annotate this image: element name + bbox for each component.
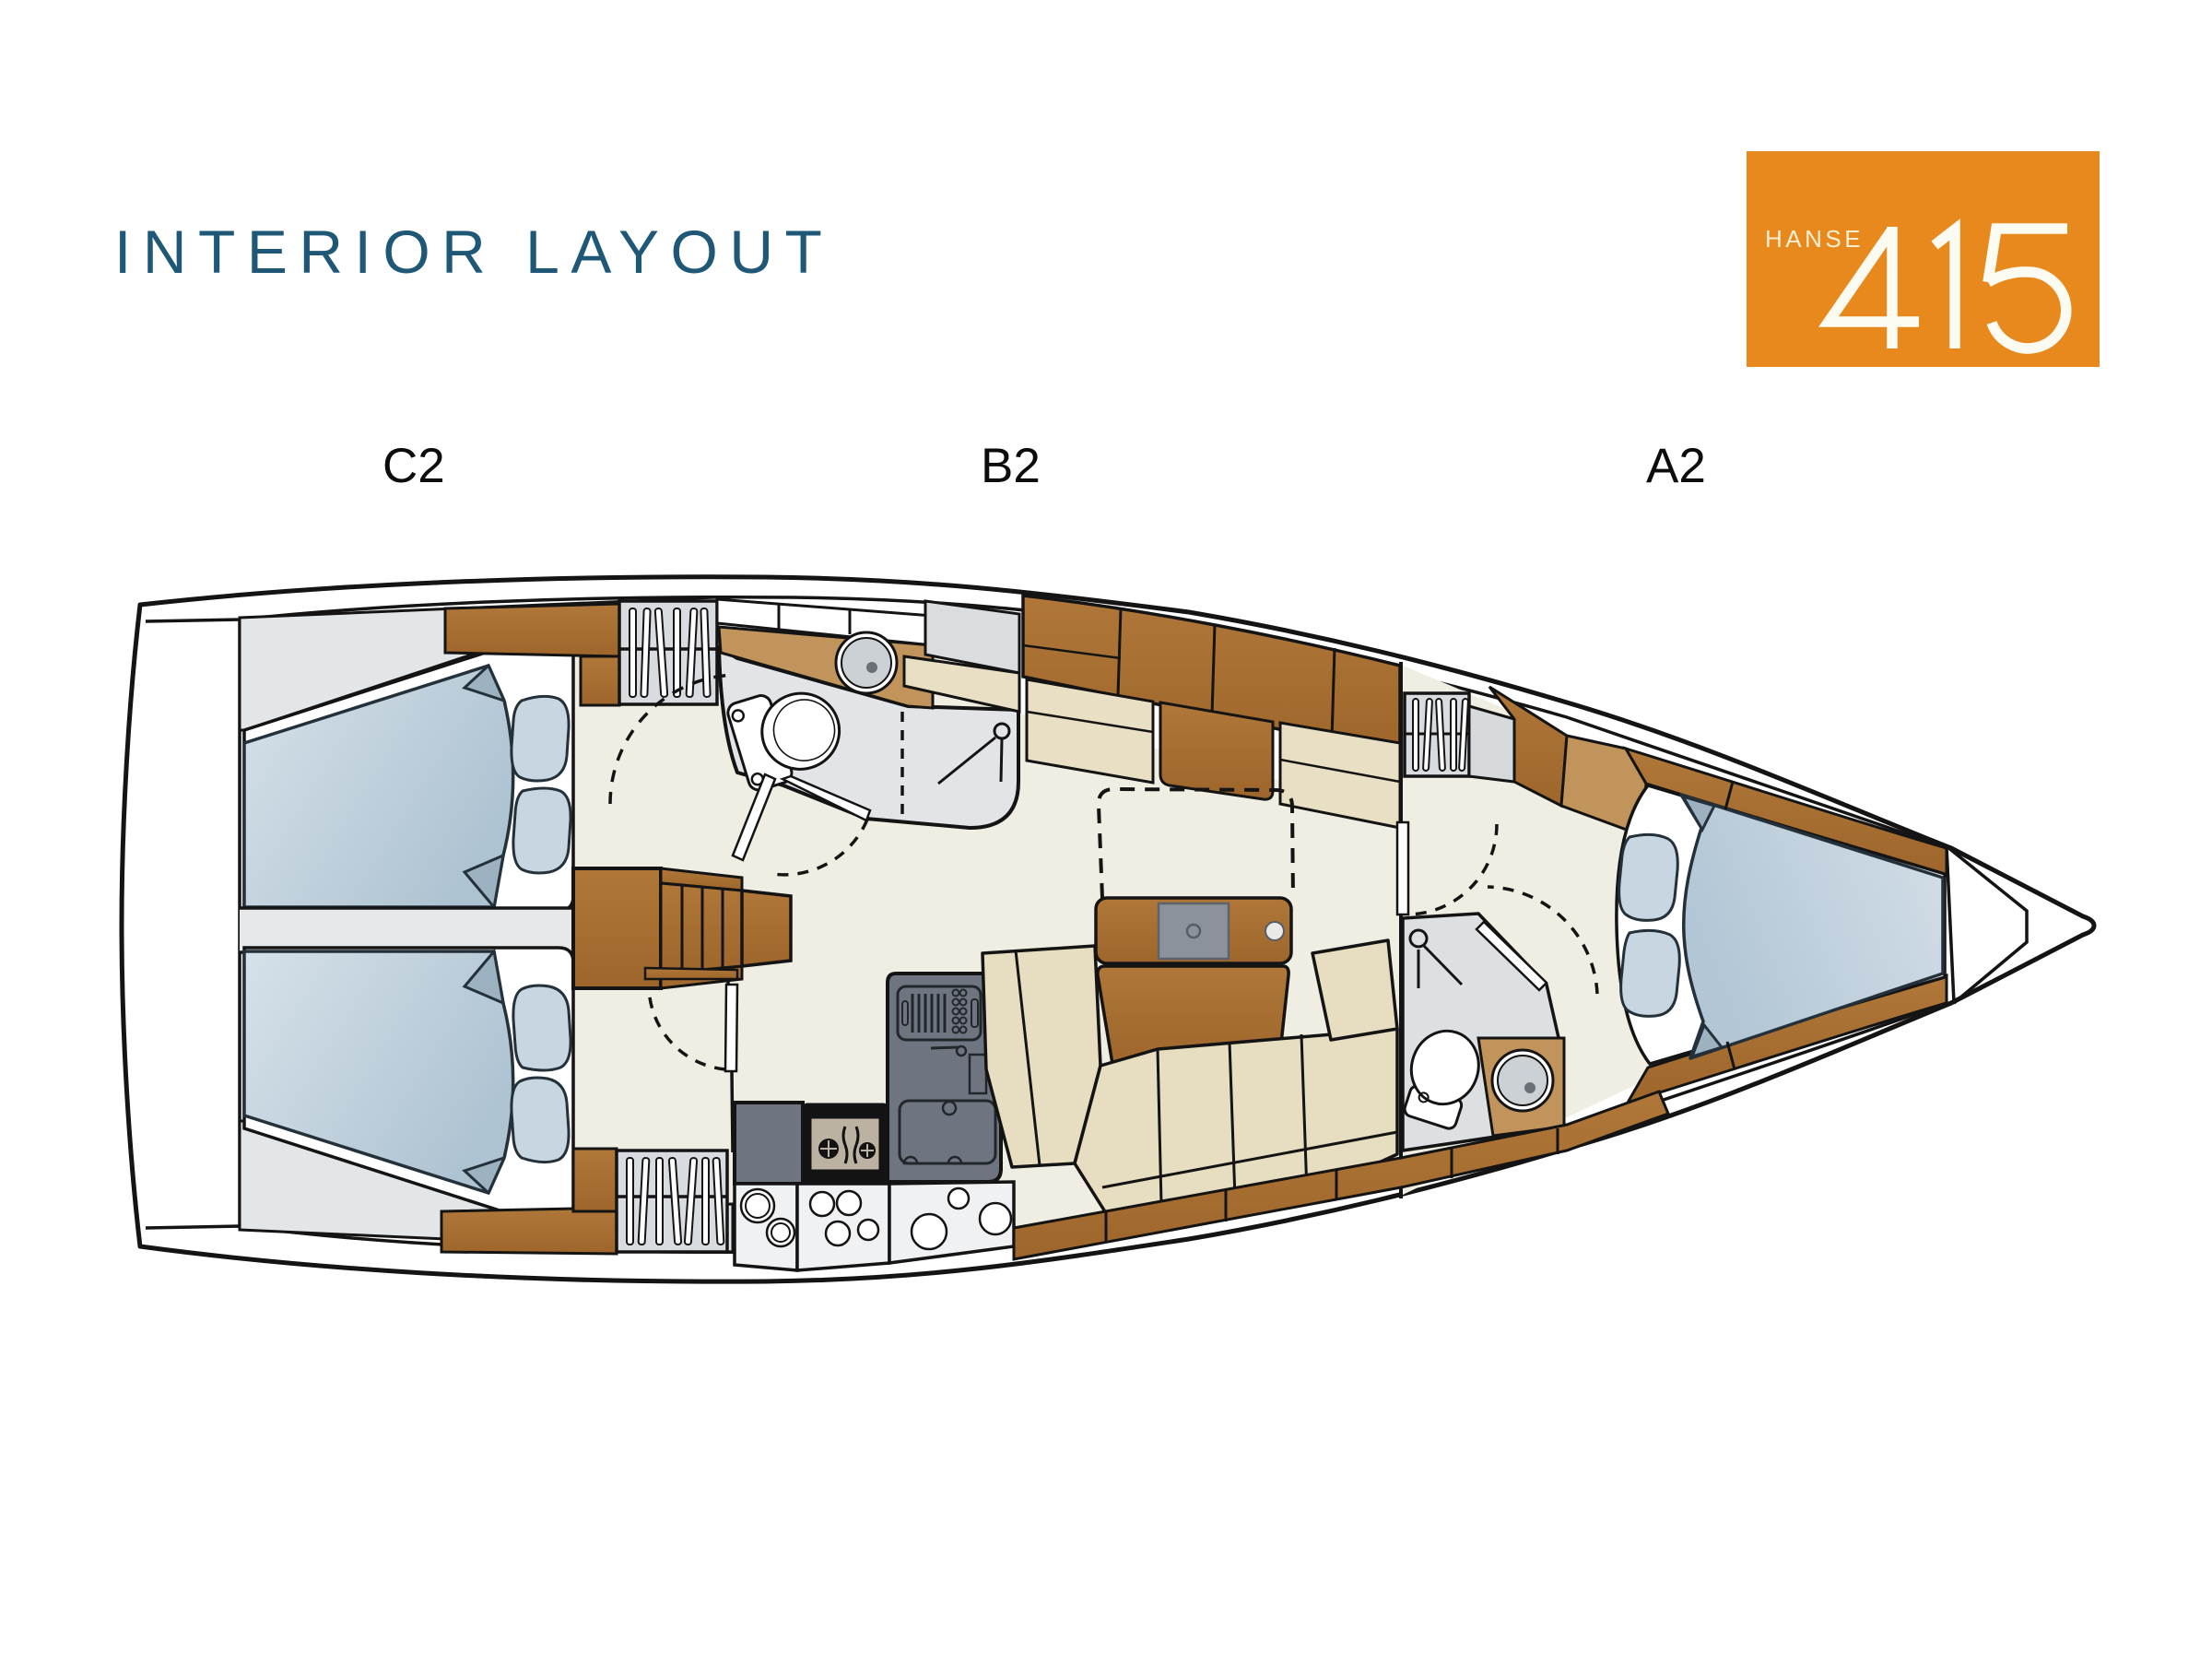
svg-text:B2: B2: [981, 439, 1041, 493]
svg-text:INTERIOR LAYOUT: INTERIOR LAYOUT: [114, 218, 833, 286]
svg-text:A2: A2: [1646, 439, 1706, 493]
svg-text:HANSE: HANSE: [1765, 225, 1864, 253]
svg-text:C2: C2: [382, 439, 445, 493]
